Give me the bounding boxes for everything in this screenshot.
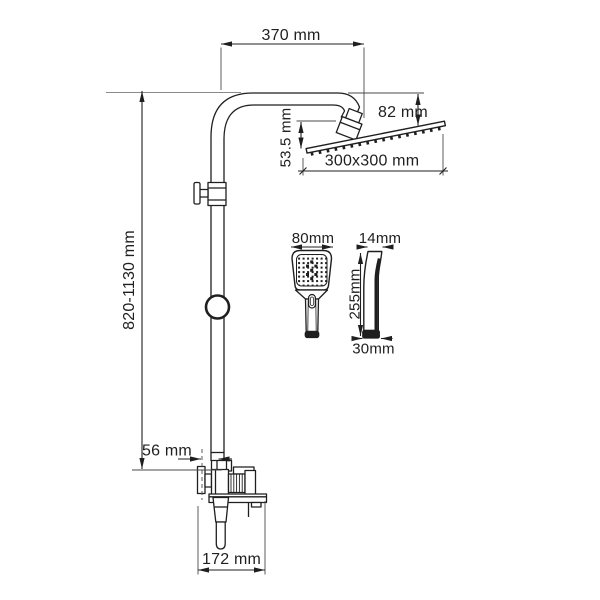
mixer-wall-flange	[198, 467, 206, 494]
spout-tube	[216, 522, 225, 549]
hand-shower-front-view	[292, 251, 332, 338]
shower-plate	[306, 121, 445, 153]
dimension-drawing: 370 mm 820-1130 mm 82 mm 53.5 mm 300x300…	[0, 0, 600, 600]
label-hand-width: 80mm	[292, 230, 334, 247]
diverter-handle	[194, 183, 200, 205]
side-end-cap	[363, 331, 380, 339]
diverter-knob	[194, 183, 226, 206]
label-hand-length: 255mm	[347, 268, 364, 319]
label-head-size: 300x300 mm	[325, 153, 420, 170]
mixer-flange-neck	[205, 474, 212, 487]
mixer-assembly	[198, 461, 267, 550]
mixer-handle-end	[245, 471, 256, 496]
dimension-labels: 370 mm 820-1130 mm 82 mm 53.5 mm 300x300…	[121, 27, 428, 568]
diverter-collar	[208, 183, 226, 206]
dimension-lines	[142, 44, 448, 570]
label-column-height: 820-1130 mm	[121, 230, 138, 330]
diverter-stem	[200, 190, 209, 198]
spout-upper	[213, 498, 229, 523]
slider-ring	[206, 296, 229, 319]
handle-end-cap	[305, 332, 318, 338]
label-head-offset: 53.5 mm	[278, 108, 295, 168]
drawing-canvas: 370 mm 820-1130 mm 82 mm 53.5 mm 300x300…	[0, 0, 600, 600]
shelf-clip	[252, 503, 262, 508]
label-head-drop: 82 mm	[378, 104, 428, 121]
label-wall-offset: 56 mm	[142, 443, 192, 460]
mixer-body	[212, 470, 229, 498]
dimension-layer: 370 mm 820-1130 mm 82 mm 53.5 mm 300x300…	[106, 27, 448, 575]
extension-lines	[106, 48, 443, 575]
label-arm-reach: 370 mm	[262, 27, 321, 44]
label-handle-width: 30mm	[352, 341, 394, 358]
overhead-shower-connector	[336, 107, 365, 140]
mode-button-inner	[310, 297, 313, 306]
label-hand-depth: 14mm	[359, 230, 401, 247]
overhead-shower-head	[306, 121, 446, 156]
label-mixer-span: 172 mm	[202, 551, 261, 568]
hand-shower-side-view	[363, 252, 382, 339]
